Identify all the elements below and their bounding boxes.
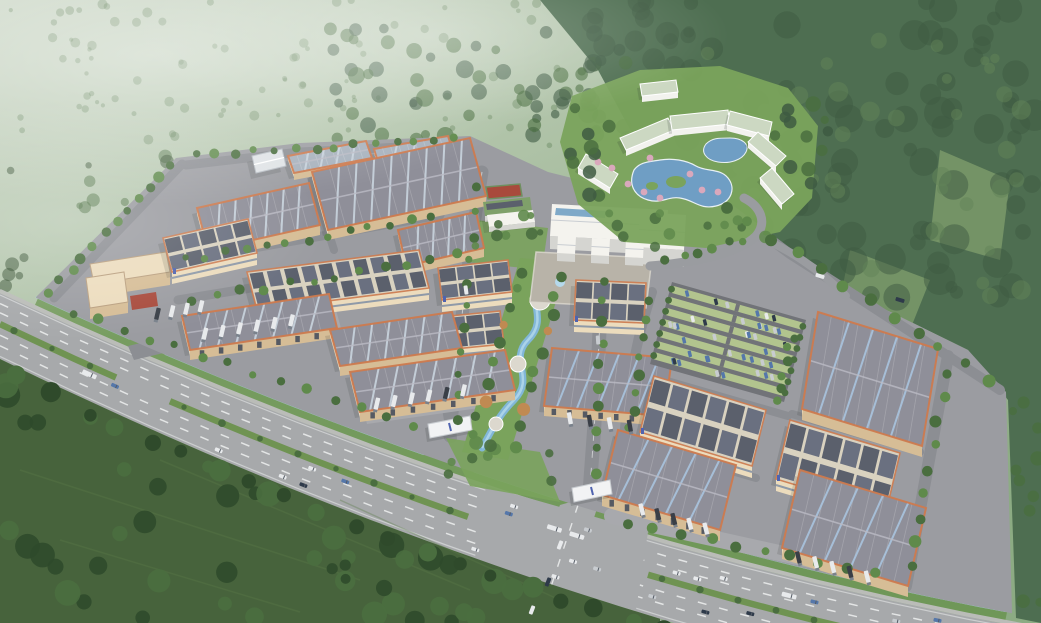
- tree: [1012, 100, 1031, 119]
- dock-door: [583, 411, 588, 417]
- median-tree: [257, 436, 263, 442]
- tree: [593, 401, 604, 412]
- tree: [821, 116, 829, 124]
- tree: [527, 212, 534, 219]
- tree: [341, 574, 351, 584]
- tree: [951, 109, 962, 120]
- accent-banner: [777, 475, 780, 481]
- office-wall: [625, 257, 643, 266]
- roof-panel: [457, 266, 474, 281]
- parking-tree: [665, 297, 672, 304]
- tree: [770, 130, 780, 140]
- tree: [885, 72, 908, 95]
- tree: [147, 569, 170, 592]
- basketball-courts: [486, 184, 522, 199]
- tree: [914, 328, 925, 339]
- tree: [942, 369, 951, 378]
- tree: [527, 366, 538, 377]
- tree: [302, 383, 312, 393]
- tree: [974, 114, 1004, 144]
- roof-panel: [576, 282, 593, 299]
- tree: [630, 406, 641, 417]
- dock-door: [295, 336, 300, 342]
- tree: [783, 160, 797, 174]
- tree: [933, 342, 942, 351]
- tree: [784, 550, 795, 561]
- tree: [682, 252, 690, 260]
- roof-panel: [610, 304, 627, 321]
- center-aisle: [733, 315, 735, 322]
- parking-tree: [659, 319, 666, 326]
- tree: [816, 263, 828, 275]
- flatted-factory-g3: [569, 280, 646, 335]
- tree: [277, 377, 285, 385]
- tree: [871, 33, 887, 49]
- tree: [593, 444, 601, 452]
- roadside-tree: [454, 557, 467, 570]
- tree: [409, 422, 418, 431]
- tree: [469, 436, 483, 450]
- tree: [742, 216, 752, 226]
- dock-door: [625, 504, 630, 511]
- roadside-tree: [308, 504, 325, 521]
- tree: [1011, 465, 1022, 476]
- tree: [307, 550, 323, 566]
- tree: [1006, 195, 1025, 214]
- tree: [376, 580, 392, 596]
- dock-door: [609, 500, 614, 507]
- garden-plaza: [510, 356, 526, 372]
- roadside-tree: [242, 474, 256, 488]
- tree: [596, 316, 607, 327]
- parking-tree: [656, 330, 663, 337]
- tree: [926, 222, 945, 241]
- tree: [783, 343, 791, 351]
- tree: [931, 40, 944, 53]
- tree: [1002, 60, 1028, 86]
- center-aisle: [736, 304, 738, 311]
- tree: [537, 229, 543, 235]
- tree: [635, 353, 642, 360]
- parking-tree: [650, 352, 657, 359]
- tree: [600, 277, 609, 286]
- garden-plaza: [489, 417, 503, 431]
- tree: [918, 488, 927, 497]
- roadside-tree: [84, 409, 97, 422]
- median-tree: [734, 597, 741, 604]
- tree: [591, 469, 602, 480]
- tree: [793, 247, 805, 259]
- dock-door: [370, 412, 375, 418]
- tree: [645, 297, 654, 306]
- median-tree: [696, 586, 703, 593]
- tree: [725, 237, 733, 245]
- tree: [996, 86, 1012, 102]
- roof-panel: [627, 304, 644, 321]
- tree: [548, 291, 559, 302]
- roof-panel: [611, 284, 628, 301]
- tree: [618, 231, 629, 242]
- tree: [801, 130, 813, 142]
- dock-door: [238, 345, 243, 351]
- cherry-tree: [657, 195, 664, 202]
- tree: [960, 197, 974, 211]
- tree: [863, 260, 880, 277]
- tree: [825, 172, 842, 189]
- tree: [517, 403, 530, 416]
- tree: [922, 466, 933, 477]
- tree: [171, 341, 178, 348]
- dock-door: [219, 347, 224, 353]
- tree: [427, 213, 435, 221]
- road-vehicle: [596, 335, 601, 344]
- median-tree: [49, 346, 54, 351]
- tree: [381, 262, 391, 272]
- tree: [932, 440, 941, 449]
- tree: [860, 102, 880, 122]
- tree: [605, 209, 613, 217]
- center-aisle: [727, 337, 729, 344]
- parking-tree: [668, 286, 675, 293]
- tree: [30, 543, 55, 568]
- median-tree: [446, 507, 454, 515]
- tree: [382, 412, 391, 421]
- tree: [0, 521, 19, 541]
- roof-panel: [439, 268, 456, 283]
- tree: [513, 284, 522, 293]
- tree: [1009, 172, 1024, 187]
- tree: [112, 526, 127, 541]
- tree: [932, 167, 951, 186]
- accent-banner: [575, 316, 578, 322]
- median-tree: [659, 576, 666, 583]
- tree: [452, 248, 462, 258]
- tree: [425, 255, 434, 264]
- tree: [30, 414, 46, 430]
- median-tree: [409, 494, 414, 499]
- tree: [985, 246, 995, 256]
- tree: [582, 188, 596, 202]
- median-tree: [333, 466, 338, 471]
- tree: [357, 402, 366, 411]
- tree: [218, 597, 232, 611]
- tree: [972, 24, 994, 46]
- tree: [817, 224, 837, 244]
- roof-panel: [484, 313, 501, 328]
- roof-panel: [492, 262, 509, 277]
- tree: [483, 451, 493, 461]
- parking-tree: [799, 323, 806, 330]
- office-wall: [591, 255, 609, 264]
- tree: [612, 220, 623, 231]
- tree: [816, 145, 827, 156]
- tree: [964, 48, 983, 67]
- roadside-tree: [380, 531, 395, 546]
- tree: [1016, 594, 1030, 608]
- tree: [984, 63, 995, 74]
- tree: [494, 337, 506, 349]
- tree: [721, 202, 733, 214]
- tree: [395, 550, 414, 569]
- parking-tree: [662, 308, 669, 315]
- tree: [823, 126, 833, 136]
- tree: [537, 347, 549, 359]
- roadside-tree: [41, 382, 61, 402]
- tree: [216, 484, 239, 507]
- tree: [526, 228, 538, 240]
- tree: [916, 515, 926, 525]
- tree: [582, 128, 595, 141]
- cherry-tree: [699, 187, 706, 194]
- dock-door: [552, 409, 557, 415]
- tree: [942, 74, 952, 84]
- tree: [660, 255, 669, 264]
- tree: [556, 272, 567, 283]
- tree: [837, 281, 849, 293]
- tree: [707, 244, 717, 254]
- tree: [1024, 505, 1036, 517]
- tree: [875, 244, 906, 275]
- cherry-tree: [625, 181, 632, 188]
- tree: [480, 396, 493, 409]
- accent-banner: [641, 428, 644, 434]
- tree: [776, 384, 786, 394]
- center-aisle: [724, 349, 726, 356]
- pond-island: [646, 182, 658, 190]
- tree: [322, 526, 346, 550]
- tree: [806, 96, 821, 111]
- tree: [249, 371, 256, 378]
- office-wall: [557, 253, 575, 262]
- tree: [311, 279, 318, 286]
- tree: [146, 337, 155, 346]
- tree: [990, 54, 1000, 64]
- tree: [467, 453, 477, 463]
- body: [596, 335, 601, 344]
- tree: [567, 156, 580, 169]
- dock-door: [276, 339, 281, 345]
- tree: [55, 580, 81, 606]
- tree: [773, 11, 800, 38]
- tree: [199, 353, 208, 362]
- dock-door: [314, 333, 319, 339]
- tree: [837, 222, 866, 251]
- tree: [664, 228, 676, 240]
- tree: [583, 165, 596, 178]
- tree: [835, 126, 851, 142]
- tree: [515, 420, 526, 431]
- accent-banner: [443, 296, 446, 302]
- tree: [455, 603, 473, 621]
- tree: [331, 396, 340, 405]
- tree: [1015, 224, 1031, 240]
- tree: [546, 476, 556, 486]
- tree: [340, 560, 351, 571]
- tree: [331, 275, 338, 282]
- parking-tree: [788, 367, 795, 374]
- median-tree: [773, 607, 780, 614]
- tree: [647, 523, 658, 534]
- cherry-tree: [647, 155, 654, 162]
- tree: [961, 358, 970, 367]
- tree: [526, 382, 537, 393]
- tree: [888, 110, 905, 127]
- tree: [459, 323, 469, 333]
- tree: [327, 563, 338, 574]
- tree: [494, 220, 503, 229]
- median-tree: [294, 450, 301, 457]
- tree: [773, 397, 781, 405]
- tree: [457, 348, 464, 355]
- roadside-tree: [349, 519, 364, 534]
- roadside-tree: [145, 435, 161, 451]
- dock-door: [391, 409, 396, 415]
- tree: [223, 358, 231, 366]
- tree: [693, 249, 703, 259]
- median-tree: [87, 363, 93, 369]
- tree: [510, 441, 522, 453]
- tree: [528, 118, 541, 131]
- tree: [491, 230, 503, 242]
- tree: [992, 179, 1011, 198]
- center-aisle: [730, 326, 732, 333]
- screenshot-root: [0, 0, 1041, 623]
- median-tree: [218, 419, 226, 427]
- roadside-tree: [584, 599, 603, 618]
- roadside-tree: [106, 418, 124, 436]
- dock-door: [451, 401, 456, 407]
- tree: [739, 238, 746, 245]
- dock-door: [411, 407, 416, 413]
- tree: [976, 277, 989, 290]
- roof-panel: [494, 278, 511, 293]
- tree: [762, 547, 770, 555]
- tree: [783, 356, 793, 366]
- tree: [448, 458, 456, 466]
- tree: [603, 120, 616, 133]
- median-tree: [370, 479, 377, 486]
- roadside-tree: [484, 570, 496, 582]
- cherry-tree: [687, 171, 694, 178]
- tree: [656, 209, 664, 217]
- roof-panel: [468, 331, 485, 346]
- tree: [593, 383, 604, 394]
- tree: [472, 242, 480, 250]
- tree: [455, 371, 462, 378]
- roadside-tree: [419, 543, 437, 561]
- tree: [1009, 407, 1017, 415]
- tree: [784, 116, 797, 129]
- roof-panel: [474, 264, 491, 279]
- pond-island: [666, 176, 686, 188]
- tree: [472, 208, 479, 215]
- tree: [998, 141, 1016, 159]
- tree: [632, 389, 639, 396]
- tree: [89, 557, 107, 575]
- tree: [444, 469, 453, 478]
- tree: [216, 562, 237, 583]
- roadside-tree: [209, 460, 231, 482]
- tree: [801, 162, 815, 176]
- tree: [133, 511, 156, 534]
- roadside-tree: [277, 488, 291, 502]
- tree: [639, 333, 647, 341]
- tree: [982, 288, 998, 304]
- tree: [821, 57, 833, 69]
- tree: [364, 223, 371, 230]
- tree: [347, 226, 355, 234]
- tree: [950, 286, 963, 299]
- tree: [642, 316, 651, 325]
- roadside-tree: [523, 577, 544, 598]
- tree: [983, 375, 996, 388]
- tree: [430, 597, 449, 616]
- tree: [355, 267, 363, 275]
- parking-tree: [653, 341, 660, 348]
- tree: [790, 335, 798, 343]
- tree: [777, 372, 785, 380]
- tree: [465, 256, 472, 263]
- center-aisle: [721, 360, 723, 367]
- tree: [703, 222, 711, 230]
- cherry-tree: [715, 189, 722, 196]
- tree: [453, 415, 463, 425]
- roof-panel: [628, 284, 645, 301]
- tree: [1018, 396, 1030, 408]
- tree: [920, 84, 941, 105]
- tree: [402, 261, 411, 270]
- tree: [908, 562, 917, 571]
- tree: [623, 519, 633, 529]
- tree: [584, 140, 599, 155]
- tree: [505, 303, 515, 313]
- tree: [987, 12, 1001, 26]
- cherry-tree: [609, 165, 616, 172]
- parking-tree: [794, 345, 801, 352]
- tree: [828, 82, 848, 102]
- parking-tree: [785, 378, 792, 385]
- tree: [870, 568, 880, 578]
- roadside-tree: [174, 445, 187, 458]
- median-tree: [181, 404, 186, 409]
- tree: [633, 370, 645, 382]
- tree: [929, 416, 941, 428]
- dock-door: [471, 398, 476, 404]
- tree: [599, 340, 608, 349]
- tree: [149, 478, 167, 496]
- tree: [471, 412, 480, 421]
- tree: [117, 462, 132, 477]
- tree: [482, 378, 494, 390]
- tree: [488, 357, 498, 367]
- tree: [464, 302, 471, 309]
- tree: [650, 242, 660, 252]
- tree: [517, 268, 528, 279]
- tree: [386, 222, 394, 230]
- tree: [484, 439, 497, 452]
- cherry-tree: [641, 189, 648, 196]
- tree: [909, 535, 922, 548]
- tree: [545, 449, 553, 457]
- tree: [548, 309, 560, 321]
- tree: [598, 296, 606, 304]
- dock-door: [614, 414, 619, 420]
- tree: [1014, 475, 1026, 487]
- tree: [910, 235, 926, 251]
- tree: [1023, 175, 1041, 193]
- tree: [676, 529, 687, 540]
- tree: [547, 143, 553, 149]
